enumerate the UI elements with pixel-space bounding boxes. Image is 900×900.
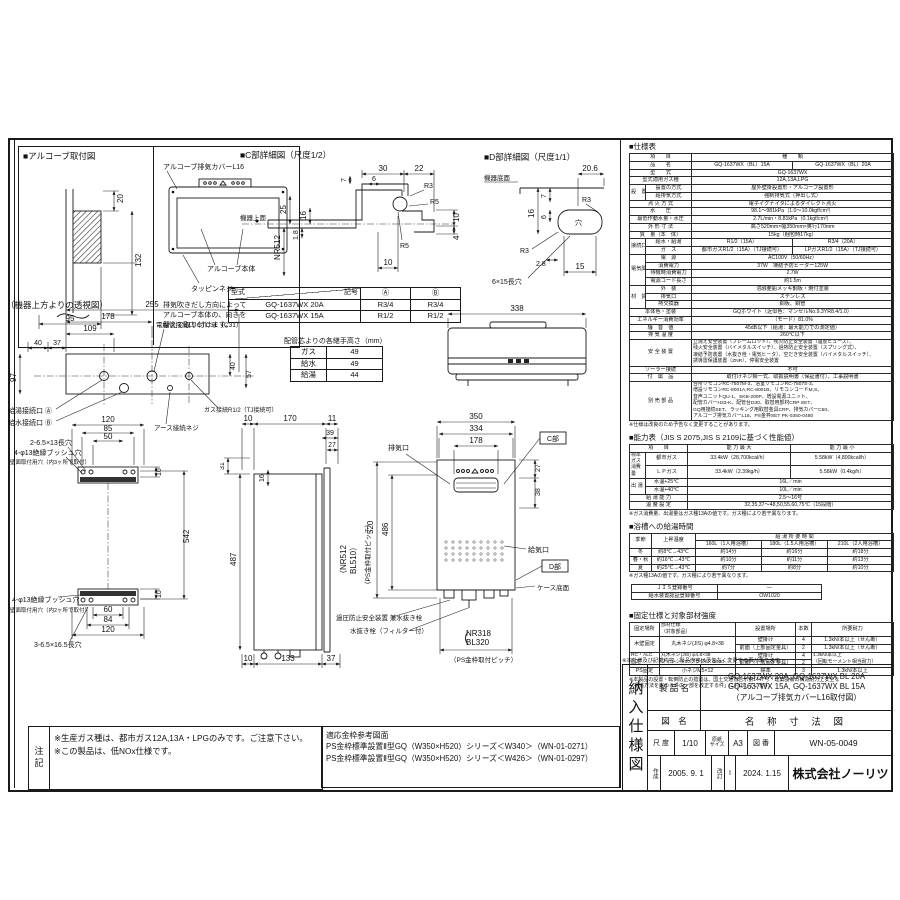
table-row: 点 火 方 式電子イグナイタによるダイレクト点火 [630, 200, 894, 208]
revision-label: 改訂 [712, 756, 725, 790]
table-cell: 熱交換器 [646, 301, 692, 309]
spec-table-title: ■仕様表 [629, 141, 893, 152]
table-row: 電気関係電 源AC100V（50/60Hz） [630, 254, 894, 262]
table-row: 項 目能 力 最 大能 力 最 小 [630, 444, 894, 452]
table-cell: 別 売 部 品 [630, 382, 692, 421]
table-cell: 180L（1.5人用浴槽） [762, 541, 828, 549]
revised-date: 2024. 1.15 [736, 756, 789, 790]
bush-hole-label: 4-φ13絶縁ブッシュ穴 [14, 448, 82, 457]
table-cell: ソーラー接続 [630, 366, 692, 374]
dim-label: 84 [104, 615, 113, 624]
capacity-table-title: ■能力表（JIS S 2075,JIS S 2109に基づく性能値） [629, 432, 893, 443]
table-row: 最低作動水量・水圧2.7L/min・8.81kPa｛0.1kgf/cm²｝ [630, 216, 894, 224]
scale-value: 1/10 [675, 731, 706, 755]
table-cell: 約13分 [828, 556, 894, 564]
table-cell: 約8分 [762, 564, 828, 572]
delivery-spec-vertical-title: 納入仕様図 [623, 665, 648, 790]
slot-label: 2-6.5×13長穴 [30, 438, 72, 447]
table-row: 水温+40℃10L／min [630, 486, 894, 494]
dim-label: 10 [244, 654, 253, 663]
table-cell: 5.58kW（0.4kg/h） [791, 465, 894, 478]
table-cell: 溶融亜鉛メッキ鋼板・焼付塗装 [692, 285, 894, 293]
table-cell: 260℃以下 [692, 332, 894, 340]
table-cell: 品 名 [630, 161, 692, 169]
intake-dots [445, 541, 503, 561]
table-row: ガ ス都市ガスR1/2（15A）（TJ接続可）LPガスR1/2（15A）（TJ接… [630, 247, 894, 255]
notes-line2: ※この製品は、低NOx仕様です。 [54, 745, 318, 758]
product-name-line1: GQ-1637WX 20A, GQ-1637WX BL 20A [728, 672, 865, 682]
table-row: 季節上昇温度給 湯 所 要 時 間 [630, 533, 894, 541]
table-row: 安 全 装 置立消え安全装置（フレームロッド）、残火防止安全装置（温度ヒューズ）… [630, 340, 894, 367]
table-cell: 2.7L/min・8.81kPa｛0.1kgf/cm²｝ [692, 216, 894, 224]
ps-frame-box: 適応金枠参考図面 PS金枠標準設置Ⅱ型GQ（W350×H520）シリーズ＜W34… [321, 726, 620, 788]
spec-table: 項 目種 類品 名GQ-1637WX（BL）15AGQ-1637WX（BL）20… [629, 153, 894, 421]
table-cell: 給水装置認証登録番号 [632, 592, 718, 600]
dim-label: R3 [424, 183, 433, 190]
table-cell: 33.4kW（28,700kcal/h） [688, 452, 791, 465]
dim-label: 40 [34, 340, 42, 347]
table-cell: 2.5～16号 [688, 494, 894, 502]
table-cell: LPガスR1/2（15A）（TJ接続可） [793, 247, 894, 255]
revision-mark: I [725, 756, 736, 790]
machine-top-label: 機器上面 [240, 213, 267, 222]
dim-label: 2.8 [536, 261, 546, 268]
table-cell: 210L（2人用浴槽） [828, 541, 894, 549]
dim-label: 57 [246, 370, 253, 378]
dim-label: 30 [379, 164, 388, 173]
table-cell: 点 火 方 式 [630, 200, 692, 208]
scale-label: 尺 度 [648, 731, 675, 755]
relief-valve-label: 過圧防止安全装置 兼水抜き栓 [336, 613, 423, 622]
table-cell: 銅板、銅管 [692, 301, 894, 309]
table-cell: 不可 [692, 366, 894, 374]
dim-label: R5 [430, 199, 439, 206]
table-cell: 強制排気式（押出し式） [692, 192, 894, 200]
table-row: 固定場所部材仕様 （対象部品）設置場所本数所要耐力 [630, 623, 894, 637]
table-cell: 付 属 品 [630, 374, 692, 382]
ps-pitch-ref: NR318 [466, 629, 491, 638]
slot-label: 3-6.5×16.5長穴 [34, 640, 82, 649]
table-cell: — [718, 584, 822, 592]
table-cell: 夏 [630, 564, 652, 572]
dim-label: 50 [104, 432, 113, 441]
table-cell: 外 装 [646, 285, 692, 293]
table-cell: 前面（上部固定金具） [736, 644, 796, 652]
table-cell: 能 力 最 小 [791, 444, 894, 452]
product-name-line3: （アルコーブ排気カバーL16取付図） [732, 693, 861, 703]
titleblock-note: ※本仕様及び記載内容、製品内容は予告なく変更する事があります。 [622, 656, 891, 664]
table-cell: 約18分 [828, 549, 894, 557]
rear-mount-drawing: 120 85 50 10 542 10 60 84 120 2-6.5×13長穴… [8, 413, 232, 669]
dim-label: 20 [116, 194, 125, 203]
table-cell: エネルギー消費効率 [630, 316, 692, 324]
table-cell: 電気関係 [630, 254, 646, 285]
dim-label: 120 [101, 625, 115, 634]
table-cell: ガス [291, 347, 327, 359]
ps-frame-title: 適応金枠参考図面 [326, 730, 615, 741]
fixing-table-title: ■固定仕様と対象部材強度 [629, 610, 893, 621]
table-cell: 冬 [630, 549, 652, 557]
table-cell: 屋外壁掛設置形・アルコーブ設置形 [692, 185, 894, 193]
spec-note: ※仕様は改良のため予告なく変更することがあります。 [629, 422, 893, 429]
table-row: 冬約8℃→43℃約14分約16分約18分 [630, 549, 894, 557]
product-name-line2: GQ-1637WX 15A, GQ-1637WX BL 15A [728, 682, 865, 692]
dim-label: 7 [341, 178, 348, 182]
product-name-label: 製 品 名 [648, 665, 701, 710]
notes-label: 注記 [29, 727, 50, 789]
table-cell: R3/4（20A） [793, 239, 894, 247]
table-cell: 給湯 [291, 370, 327, 382]
slot-label: 6×15長穴 [492, 277, 522, 286]
table-row: 温 度 設 定32,35,37～48,50,55,60,75℃（15段階） [630, 502, 894, 510]
table-row: 別 売 部 品台所リモコンRC-7507M-3、浴室リモコンRC-7507S-3… [630, 382, 894, 421]
dim-label: 338 [510, 304, 524, 313]
symbol-header: 記号 [344, 288, 358, 298]
table-cell: 1.3kN/本以上（せん断） [812, 644, 894, 652]
table-cell: 高さ520mm×幅350mm×奥行170mm [692, 223, 894, 231]
table-cell: 騒 音 値 [630, 324, 692, 332]
conduit-label: 電線管接続口 CTC31（C31） [156, 320, 242, 329]
table-row: 木壁固定丸木ネジ(JIS) φ4.8×38壁掛け41.3kN/本以上（せん断） [630, 637, 894, 645]
spec-panel: ■仕様表 項 目種 類品 名GQ-1637WX（BL）15AGQ-1637WX（… [629, 141, 893, 693]
table-cell: 上昇温度 [652, 533, 696, 549]
wall-mount-label: 壁面取付用穴（内3ヶ所で取付） [10, 458, 90, 466]
table-cell: 約14分 [696, 549, 762, 557]
table-cell: 立消え安全装置（フレームロッド）、残火防止安全装置（温度ヒューズ）、 残火安全装… [692, 340, 894, 367]
table-row: エネルギー消費効率（モード）81.0% [630, 316, 894, 324]
drain-plug-label: 水抜き栓（フィルター付） [350, 626, 428, 635]
dim-label: 132 [134, 253, 143, 267]
ps-frame-line1: PS金枠標準設置Ⅱ型GQ（W350×H520）シリーズ＜W340＞（WN-01-… [326, 741, 615, 752]
table-cell: GQ-1637WX [692, 169, 894, 177]
table-cell: 4 [796, 637, 812, 645]
capacity-table: 項 目能 力 最 大能 力 最 小標準ガス 消費量都市ガス33.4kW（28,7… [629, 444, 894, 510]
dim-label: 27 [535, 464, 542, 472]
dim-label: 178 [101, 312, 115, 321]
exhaust-label: 排気口 [388, 443, 409, 452]
detail-c-drawing: ■C部詳細図（尺度1/2） 機器上面 30 22 6 R3 [238, 148, 478, 290]
dim-label: 6 [372, 176, 376, 183]
table-cell: 約7分 [696, 564, 762, 572]
dim-label: 4 [452, 235, 461, 240]
dim-label: 486 [381, 522, 390, 536]
dim-label: NR512 [273, 235, 282, 260]
dim-label: 520 [366, 520, 375, 534]
dim-label: 109 [83, 324, 97, 333]
drawing-number-value: WN-05-0049 [775, 731, 892, 755]
table-cell: GQホワイト（近似色：マンセルNo.9.3YR8.4/1.0） [692, 309, 894, 317]
table-cell: 給 湯 能 力 [630, 494, 688, 502]
table-cell: 春・秋 [630, 556, 652, 564]
table-cell: ステンレス [692, 293, 894, 301]
dim-label: R3 [582, 197, 591, 204]
dim-label: 40 [230, 362, 237, 370]
dim-label: R5 [400, 243, 409, 250]
table-cell: （モード）81.0% [692, 316, 894, 324]
table-cell: 約10分 [828, 564, 894, 572]
table-cell: 最低作動水量・水圧 [630, 216, 692, 224]
table-row: 設 置設置の方式屋外壁掛設置形・アルコーブ設置形 [630, 185, 894, 193]
table-row: 質 量（本 体）15kg（梱包時17kg） [630, 231, 894, 239]
date-company-row: 作成 2005. 9. 1 改訂 I 2024. 1.15 株式会社ノーリツ [648, 756, 892, 790]
table-cell: 水 圧 [630, 208, 692, 216]
table-cell: 160L（1人用浴槽） [696, 541, 762, 549]
joint-table-title: 配管芯よりの各継手高さ（mm） [284, 336, 434, 346]
table-cell: 10L／min [688, 486, 894, 494]
table-cell: R1/2（15A） [692, 239, 793, 247]
table-cell: 45dB以下（給湯：最大能力での測定値） [692, 324, 894, 332]
table-cell: 設置の方式 [646, 185, 692, 193]
drawing-name-value: 名 称 寸 法 図 [701, 711, 892, 730]
table-cell: 出 湯 量 [630, 479, 646, 495]
table-cell: 壁掛け [736, 637, 796, 645]
ps-frame-line2: PS金枠標準設置Ⅱ型GQ（W350×H520）シリーズ＜W426＞（WN-01-… [326, 753, 615, 764]
table-cell: 所要耐力 [812, 623, 894, 637]
dim-label: 487 [229, 552, 238, 566]
table-cell: 安 全 装 置 [630, 340, 692, 367]
drawing-name-row: 図 名 名 称 寸 法 図 [648, 711, 892, 731]
dim-label: 16 [527, 209, 536, 218]
col-b-header: Ⓑ [411, 288, 461, 300]
table-cell: 取付けネジ類一式、取扱説明書（保証書付）、工事説明書 [692, 374, 894, 382]
dim-label: 31 [220, 462, 226, 470]
dim-label: 16 [299, 211, 308, 220]
detail-c-title: ■C部詳細図（尺度1/2） [240, 150, 331, 160]
table-cell: 能 力 最 大 [688, 444, 791, 452]
table-cell: 約16分 [762, 549, 828, 557]
drawing-number-label: 図 番 [748, 731, 775, 755]
table-cell: 約1.5m [692, 278, 894, 286]
table-row: 型 式GQ-1637WX [630, 169, 894, 177]
alcove-title: ■アルコーブ取付図 [23, 150, 95, 162]
dim-label: 10 [156, 590, 163, 598]
table-row: 給水装置認証登録番号OW1020 [632, 592, 822, 600]
table-cell: 排 気 温 度 [630, 332, 692, 340]
table-cell: 項 目 [630, 154, 692, 162]
capacity-note: ※ガス消費量、出湯量はガス種13Aの値です。ガス種により若干異なります。 [629, 511, 893, 518]
table-cell: 部材仕様 （対象部品） [660, 623, 736, 637]
table-cell: 32,35,37～48,50,55,60,75℃（15段階） [688, 502, 894, 510]
bath-table-title: ■浴槽への給湯時間 [629, 521, 893, 532]
table-row: 項 目種 類 [630, 154, 894, 162]
dim-label: 334 [469, 424, 483, 433]
table-row: 水 圧98.1～981kPa｛1.0～10.0kgf/cm²｝ [630, 208, 894, 216]
bath-table: 季節上昇温度給 湯 所 要 時 間160L（1人用浴槽）180L（1.5人用浴槽… [629, 533, 894, 573]
table-cell: 44 [327, 370, 383, 382]
table-cell: 待機時消費電力 [646, 270, 692, 278]
created-label: 作成 [648, 756, 661, 790]
table-cell: 木壁固定 [630, 637, 660, 653]
table-row: 給排気方式強制排気式（押出し式） [630, 192, 894, 200]
table-row: 騒 音 値45dB以下（給湯：最大能力での測定値） [630, 324, 894, 332]
table-cell: 設置場所 [736, 623, 796, 637]
dim-label: 10 [156, 468, 163, 476]
table-cell: 電 源 [646, 254, 692, 262]
table-cell: 季節 [630, 533, 652, 549]
top-outline-shapes [448, 314, 586, 386]
dim-label: R3 [520, 248, 529, 255]
dim-label: 15 [576, 262, 585, 271]
table-cell: 2.7W [692, 270, 894, 278]
top-outline-drawing: 338 [428, 300, 603, 405]
table-row: ソーラー接続不可 [630, 366, 894, 374]
dim-label: 10 [244, 414, 253, 423]
table-cell: 水温+40℃ [646, 486, 688, 494]
dim-label: 38 [535, 488, 542, 496]
bush-hole-label: 4-φ13絶縁ブッシュ穴 [12, 595, 80, 604]
table-row: 電源コード長さ約1.5m [630, 278, 894, 286]
table-row: 給 湯 能 力2.5～16号 [630, 494, 894, 502]
table-cell: 水温+25℃ [646, 479, 688, 487]
table-cell: 5.58kW（4,800kcal/h） [791, 452, 894, 465]
table-row: 本体色・塗装GQホワイト（近似色：マンセルNo.9.3YR8.4/1.0） [630, 309, 894, 317]
product-name-row: 製 品 名 GQ-1637WX 20A, GQ-1637WX BL 20A GQ… [648, 665, 892, 711]
table-row: 品 名GQ-1637WX（BL）15AGQ-1637WX（BL）20A [630, 161, 894, 169]
machine-bottom-label: 機器底面 [484, 173, 511, 182]
table-cell: AC100V（50/60Hz） [692, 254, 894, 262]
table-cell: 給排気方式 [646, 192, 692, 200]
table-row: 待機時消費電力2.7W [630, 270, 894, 278]
alcove-screw-label: タッピンネジ [191, 284, 233, 293]
bath-note: ※ガス種13Aの値です。ガス種により若干異なります。 [629, 573, 893, 580]
table-row: 夏約25℃→43℃約7分約8分約10分 [630, 564, 894, 572]
table-cell: 質 量（本 体） [630, 231, 692, 239]
table-cell: 接続口径 [630, 239, 646, 255]
table-cell: GQ-1637WX（BL）20A [793, 161, 894, 169]
table-cell: 約25℃→43℃ [652, 564, 696, 572]
table-cell: 給 湯 所 要 時 間 [696, 533, 894, 541]
table-row: ＪＩＳ登録番号— [632, 584, 822, 592]
dim-label: 1.8 [293, 230, 300, 240]
c-ref-label: C部 [547, 434, 559, 443]
dim-label: 10 [452, 213, 461, 222]
table-cell: 設 置 [630, 185, 646, 201]
dim-label: 170 [283, 414, 297, 423]
side-view-shapes [224, 424, 340, 668]
top-view-title: （機器上方よりの透視図） [6, 300, 108, 310]
table-cell: 33.4kW（2.39kg/h） [688, 465, 791, 478]
paper-size-value: A3 [729, 731, 748, 755]
table-row: 排気口ステンレス [630, 293, 894, 301]
table-cell: 約8℃→43℃ [652, 549, 696, 557]
table-cell: 固定場所 [630, 623, 660, 637]
table-cell: R1/2 [361, 311, 411, 323]
ps-pitch-label: （PS金枠取付ピッチ） [450, 655, 517, 664]
table-cell: 49 [327, 347, 383, 359]
dim-label: 37 [53, 340, 61, 347]
dim-label: 120 [101, 415, 115, 424]
paper-size-label: 原紙 サイズ [706, 731, 729, 755]
d-ref-label: D部 [549, 562, 561, 571]
table-cell: 約11分 [762, 556, 828, 564]
case-bottom-label: ケース底面 [537, 583, 570, 592]
dim-label: 255 [145, 300, 159, 309]
hole-label: 穴 [575, 218, 582, 227]
table-cell: 37W 凍結予防ヒーター125W [692, 262, 894, 270]
table-cell: 電源コード長さ [646, 278, 692, 286]
table-cell: 16L／min [688, 479, 894, 487]
created-date: 2005. 9. 1 [661, 756, 712, 790]
table-cell: ＬＰガス [646, 465, 688, 478]
table-cell: 丸木ネジ(JIS) φ4.8×38 [660, 637, 736, 653]
company-name: 株式会社ノーリツ [789, 756, 892, 790]
table-cell: GQ-1637WX（BL）15A [692, 161, 793, 169]
table-cell: R3/4 [361, 299, 411, 311]
dim-label: 25 [279, 205, 288, 214]
table-cell: 種 類 [692, 154, 894, 162]
table-cell: ガ ス [646, 247, 692, 255]
table-row: ＬＰガス33.4kW（2.39kg/h）5.58kW（0.4kg/h） [630, 465, 894, 478]
table-cell: 台所リモコンRC-7507M-3、浴室リモコンRC-7507S-3、 増設リモコ… [692, 382, 894, 421]
table-cell: 約10分 [696, 556, 762, 564]
dim-label: 97 [9, 373, 18, 382]
detail-d-drawing: ■D部詳細図（尺度1/1） 機器底面 20.6 16 6 7 R3 R3 2.8… [484, 150, 610, 292]
table-cell: 排気口 [646, 293, 692, 301]
table-row: 排 気 温 度260℃以下 [630, 332, 894, 340]
dim-label: 7 [541, 194, 548, 198]
dim-label: 133 [281, 654, 295, 663]
table-cell: 49 [327, 358, 383, 370]
table-row: 春・秋約16℃→43℃約10分約11分約13分 [630, 556, 894, 564]
intake-label: 給気口 [528, 545, 549, 554]
table-cell: 約16℃→43℃ [652, 556, 696, 564]
table-cell: 材 質 [630, 285, 646, 308]
table-cell: 12A,13A,LPG [692, 177, 894, 185]
table-row: 給湯44 [291, 370, 383, 382]
table-cell: 型 式 [630, 169, 692, 177]
table-cell: 本体色・塗装 [630, 309, 692, 317]
table-cell: 都市ガスR1/2（15A）（TJ接続可） [692, 247, 793, 255]
dim-label: 16 [259, 474, 266, 482]
table-row: 接続口径給水・給湯R1/2（15A）R3/4（20A） [630, 239, 894, 247]
table-cell: 電子イグナイタによるダイレクト点火 [692, 200, 894, 208]
dim-label: 178 [469, 436, 483, 445]
scale-number-row: 尺 度 1/10 原紙 サイズ A3 図 番 WN-05-0049 [648, 731, 892, 756]
table-cell: 15kg（梱包時17kg） [692, 231, 894, 239]
table-cell: 都市ガス [646, 452, 688, 465]
table-cell: 給水 [291, 358, 327, 370]
col-a-header: Ⓐ [361, 288, 411, 300]
table-cell: 温 度 設 定 [630, 502, 688, 510]
table-row: 標準ガス 消費量都市ガス33.4kW（28,700kcal/h）5.58kW（4… [630, 452, 894, 465]
notes-line1: ※生産ガス種は、都市ガス12A,13A・LPGのみです。ご注意下さい。 [54, 732, 318, 745]
table-cell: 項 目 [630, 444, 688, 452]
notes-box: 注記 ※生産ガス種は、都市ガス12A,13A・LPGのみです。ご注意下さい。 ※… [28, 726, 323, 790]
title-block: 納入仕様図 製 品 名 GQ-1637WX 20A, GQ-1637WX BL … [622, 664, 893, 791]
table-cell: 本数 [796, 623, 812, 637]
dim-label: 350 [469, 412, 483, 421]
table-row: 消費電力37W 凍結予防ヒーター125W [630, 262, 894, 270]
dim-label: 20.6 [582, 164, 598, 173]
dim-label: 6 [541, 215, 548, 219]
table-row: 材 質外 装溶融亜鉛メッキ鋼板・焼付塗装 [630, 285, 894, 293]
table-row: 付 属 品取付けネジ類一式、取扱説明書（保証書付）、工事説明書 [630, 374, 894, 382]
wall-mount-label: 壁面取付用穴（内2ヶ所で取付） [10, 606, 90, 614]
joint-height-table: 配管芯よりの各継手高さ（mm） ガス49給水49給湯44 [284, 336, 434, 382]
dim-label: 542 [182, 529, 191, 543]
drawing-sheet: ■アルコーブ取付図 20 132 95 アルコーブ排気カバーL16 [0, 0, 900, 900]
table-cell: 外 形 寸 法 [630, 223, 692, 231]
table-cell: 1.3kN/本以上（せん断） [812, 637, 894, 645]
table-row: 給水49 [291, 358, 383, 370]
alcove-cover-label: アルコーブ排気カバーL16 [163, 162, 244, 171]
table-cell: OW1020 [718, 592, 822, 600]
front-view-drawing: 350 334 178 排気口 C部 27 38 520 486 給気口 D部 … [332, 412, 588, 680]
table-cell: 給水・給湯 [646, 239, 692, 247]
table-row: 出 湯 量水温+25℃16L／min [630, 479, 894, 487]
detail-d-title: ■D部詳細図（尺度1/1） [484, 152, 575, 162]
table-row: 熱交換器銅板、銅管 [630, 301, 894, 309]
